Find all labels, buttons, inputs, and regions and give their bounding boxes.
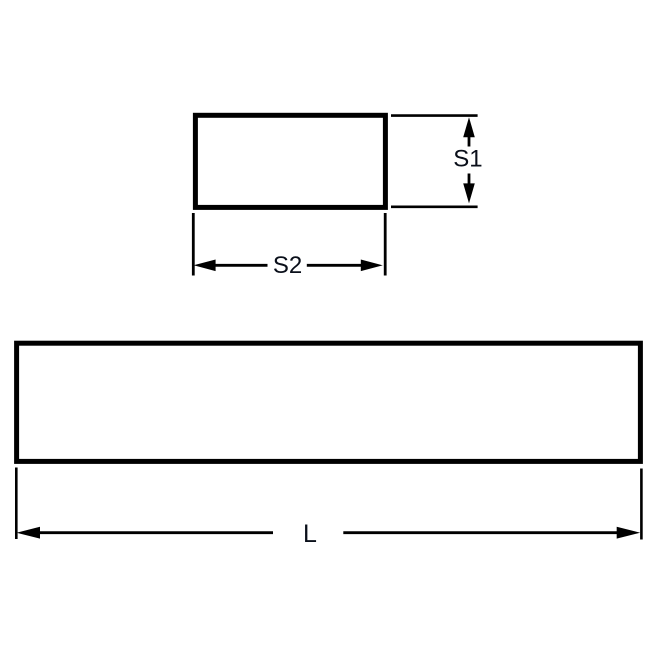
svg-text:L: L bbox=[303, 520, 317, 548]
svg-text:S1: S1 bbox=[453, 146, 482, 173]
svg-text:S2: S2 bbox=[273, 252, 302, 279]
